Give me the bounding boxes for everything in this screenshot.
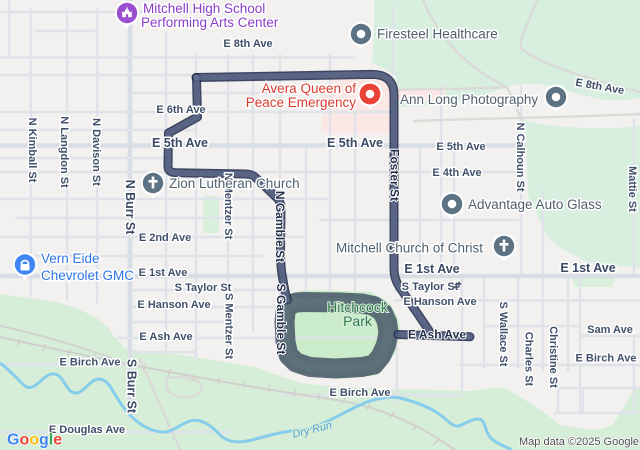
svg-text:Zion Lutheran Church: Zion Lutheran Church [169,176,300,191]
svg-text:E 2nd Ave: E 2nd Ave [139,232,191,244]
svg-text:Charles St: Charles St [523,332,535,387]
svg-text:Firesteel Healthcare: Firesteel Healthcare [377,27,498,42]
svg-text:E Birch Ave: E Birch Ave [576,353,637,365]
svg-text:N Calhoun St: N Calhoun St [514,122,526,191]
svg-text:Chevrolet GMC: Chevrolet GMC [41,268,134,283]
svg-text:S Wallace St: S Wallace St [497,301,509,366]
svg-text:N Langdon St: N Langdon St [58,116,70,188]
svg-text:e: e [53,432,62,449]
svg-text:N Gamble St: N Gamble St [273,191,287,262]
svg-text:Mitchell Church of Christ: Mitchell Church of Christ [336,241,483,256]
svg-text:E 8th Ave: E 8th Ave [223,38,272,50]
svg-text:G: G [7,432,19,449]
svg-text:Mitchell High School: Mitchell High School [143,1,265,16]
svg-text:Foster St: Foster St [388,149,402,201]
svg-text:E 1st Ave: E 1st Ave [404,262,459,276]
svg-text:Map data ©2025 Google: Map data ©2025 Google [519,436,639,448]
svg-text:Peace Emergency: Peace Emergency [246,95,357,110]
svg-text:E 1st Ave: E 1st Ave [139,267,188,279]
svg-text:Performing Arts Center: Performing Arts Center [141,15,279,30]
svg-text:E Birch Ave: E Birch Ave [60,357,121,369]
svg-text:o: o [19,432,29,449]
svg-text:E 4th Ave: E 4th Ave [432,167,481,179]
svg-text:E 6th Ave: E 6th Ave [156,104,205,116]
svg-text:S Mentzer St: S Mentzer St [223,293,235,359]
svg-text:Vern Eide: Vern Eide [41,251,100,266]
svg-text:E 5th Ave: E 5th Ave [436,141,485,153]
svg-text:Sam Ave: Sam Ave [587,324,633,336]
svg-text:Advantage Auto Glass: Advantage Auto Glass [468,197,602,212]
svg-text:Park: Park [343,313,373,329]
svg-text:N Kimball St: N Kimball St [26,118,38,183]
svg-text:Avera Queen of: Avera Queen of [262,81,357,96]
svg-text:S Gamble St: S Gamble St [274,284,288,355]
svg-text:N Davison St: N Davison St [90,118,102,186]
svg-text:E Ash Ave: E Ash Ave [139,331,192,343]
svg-text:E Birch Ave: E Birch Ave [330,387,391,399]
svg-text:E 1st Ave: E 1st Ave [560,261,615,275]
svg-text:g: g [39,432,49,449]
svg-text:Christine St: Christine St [547,326,559,388]
svg-text:E 5th Ave: E 5th Ave [152,136,208,150]
svg-text:E 5th Ave: E 5th Ave [327,136,383,150]
svg-text:o: o [29,432,39,449]
svg-text:Ann Long Photography: Ann Long Photography [400,92,538,107]
svg-text:N Burr St: N Burr St [123,180,137,236]
svg-text:S Taylor St: S Taylor St [402,281,459,293]
svg-text:E Ash Ave: E Ash Ave [408,328,466,342]
svg-text:E Hanson Ave: E Hanson Ave [137,299,210,311]
svg-text:S Burr St: S Burr St [125,359,139,414]
svg-text:E Hanson Ave: E Hanson Ave [403,296,476,308]
svg-text:Mattie St: Mattie St [626,166,638,212]
